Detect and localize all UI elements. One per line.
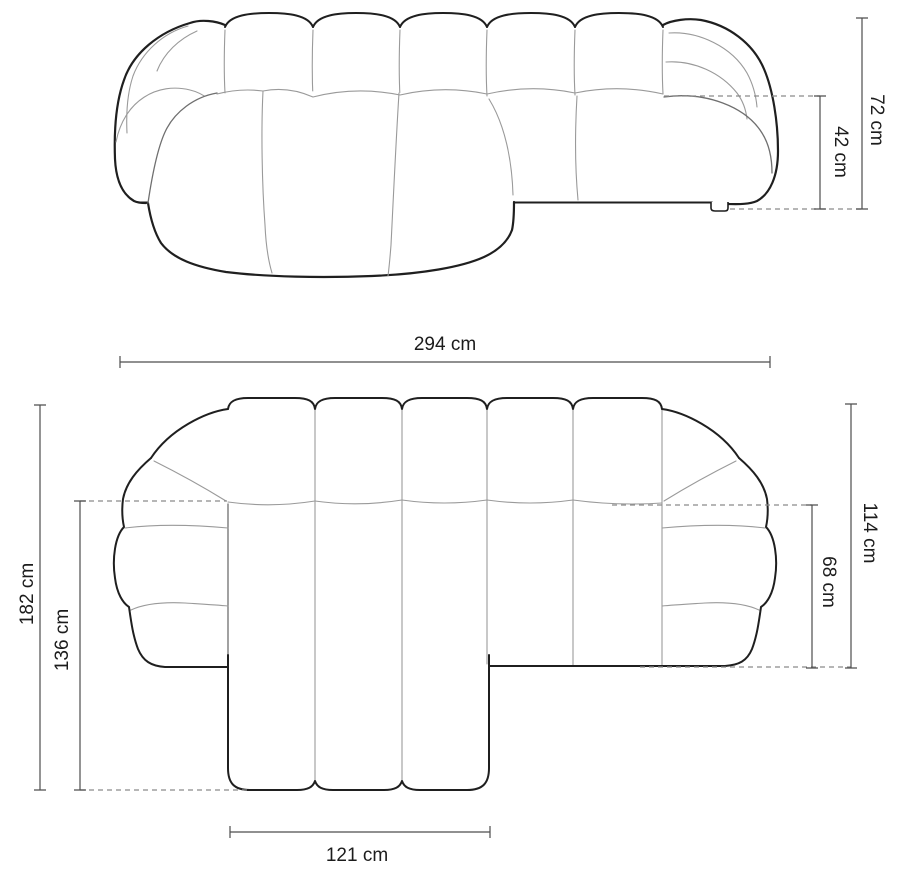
- dimension-line-total-width: 294 cm: [120, 334, 770, 368]
- top-view-back-cushions: [228, 398, 662, 505]
- dimension-line-total-depth: 182 cm: [17, 405, 46, 790]
- dimension-label-seat-height: 42 cm: [830, 126, 851, 178]
- dimension-line-total-height: 72 cm: [856, 18, 887, 209]
- dimension-label-chaise-depth: 136 cm: [52, 609, 73, 671]
- sofa-dimension-diagram: 42 cm 72 cm 294 cm: [0, 0, 900, 880]
- dimension-line-chaise-width: 121 cm: [230, 826, 490, 866]
- top-view-dimensions: 182 cm 136 cm 114 cm 68 cm 121 cm: [17, 404, 880, 866]
- dimension-label-inner-depth: 68 cm: [818, 556, 839, 608]
- top-view-left-arm: [114, 409, 228, 667]
- dimension-line-inner-depth: 68 cm: [806, 505, 839, 668]
- dimension-line-chaise-depth: 136 cm: [52, 501, 86, 790]
- dimension-label-total-width: 294 cm: [414, 334, 476, 355]
- dimension-label-total-height: 72 cm: [866, 94, 887, 146]
- side-view: [115, 13, 778, 277]
- top-view-channel-seams: [228, 410, 662, 782]
- side-view-right-arm: [663, 19, 778, 204]
- side-view-seat-seam: [576, 96, 578, 200]
- top-view-right-arm: [662, 409, 776, 666]
- dimension-label-chaise-width: 121 cm: [326, 845, 388, 866]
- dimension-line-seat-height: 42 cm: [814, 96, 851, 209]
- dimension-label-total-depth: 182 cm: [17, 563, 38, 625]
- diagram-canvas: 42 cm 72 cm 294 cm: [0, 0, 900, 880]
- dimension-label-body-depth: 114 cm: [859, 503, 880, 564]
- top-view: [114, 398, 776, 790]
- side-view-back-cushions: [224, 13, 663, 99]
- dimension-line-body-depth: 114 cm: [845, 404, 880, 668]
- top-view-chaise: [228, 655, 489, 790]
- side-view-foot: [711, 202, 728, 211]
- side-view-chaise: [148, 90, 514, 277]
